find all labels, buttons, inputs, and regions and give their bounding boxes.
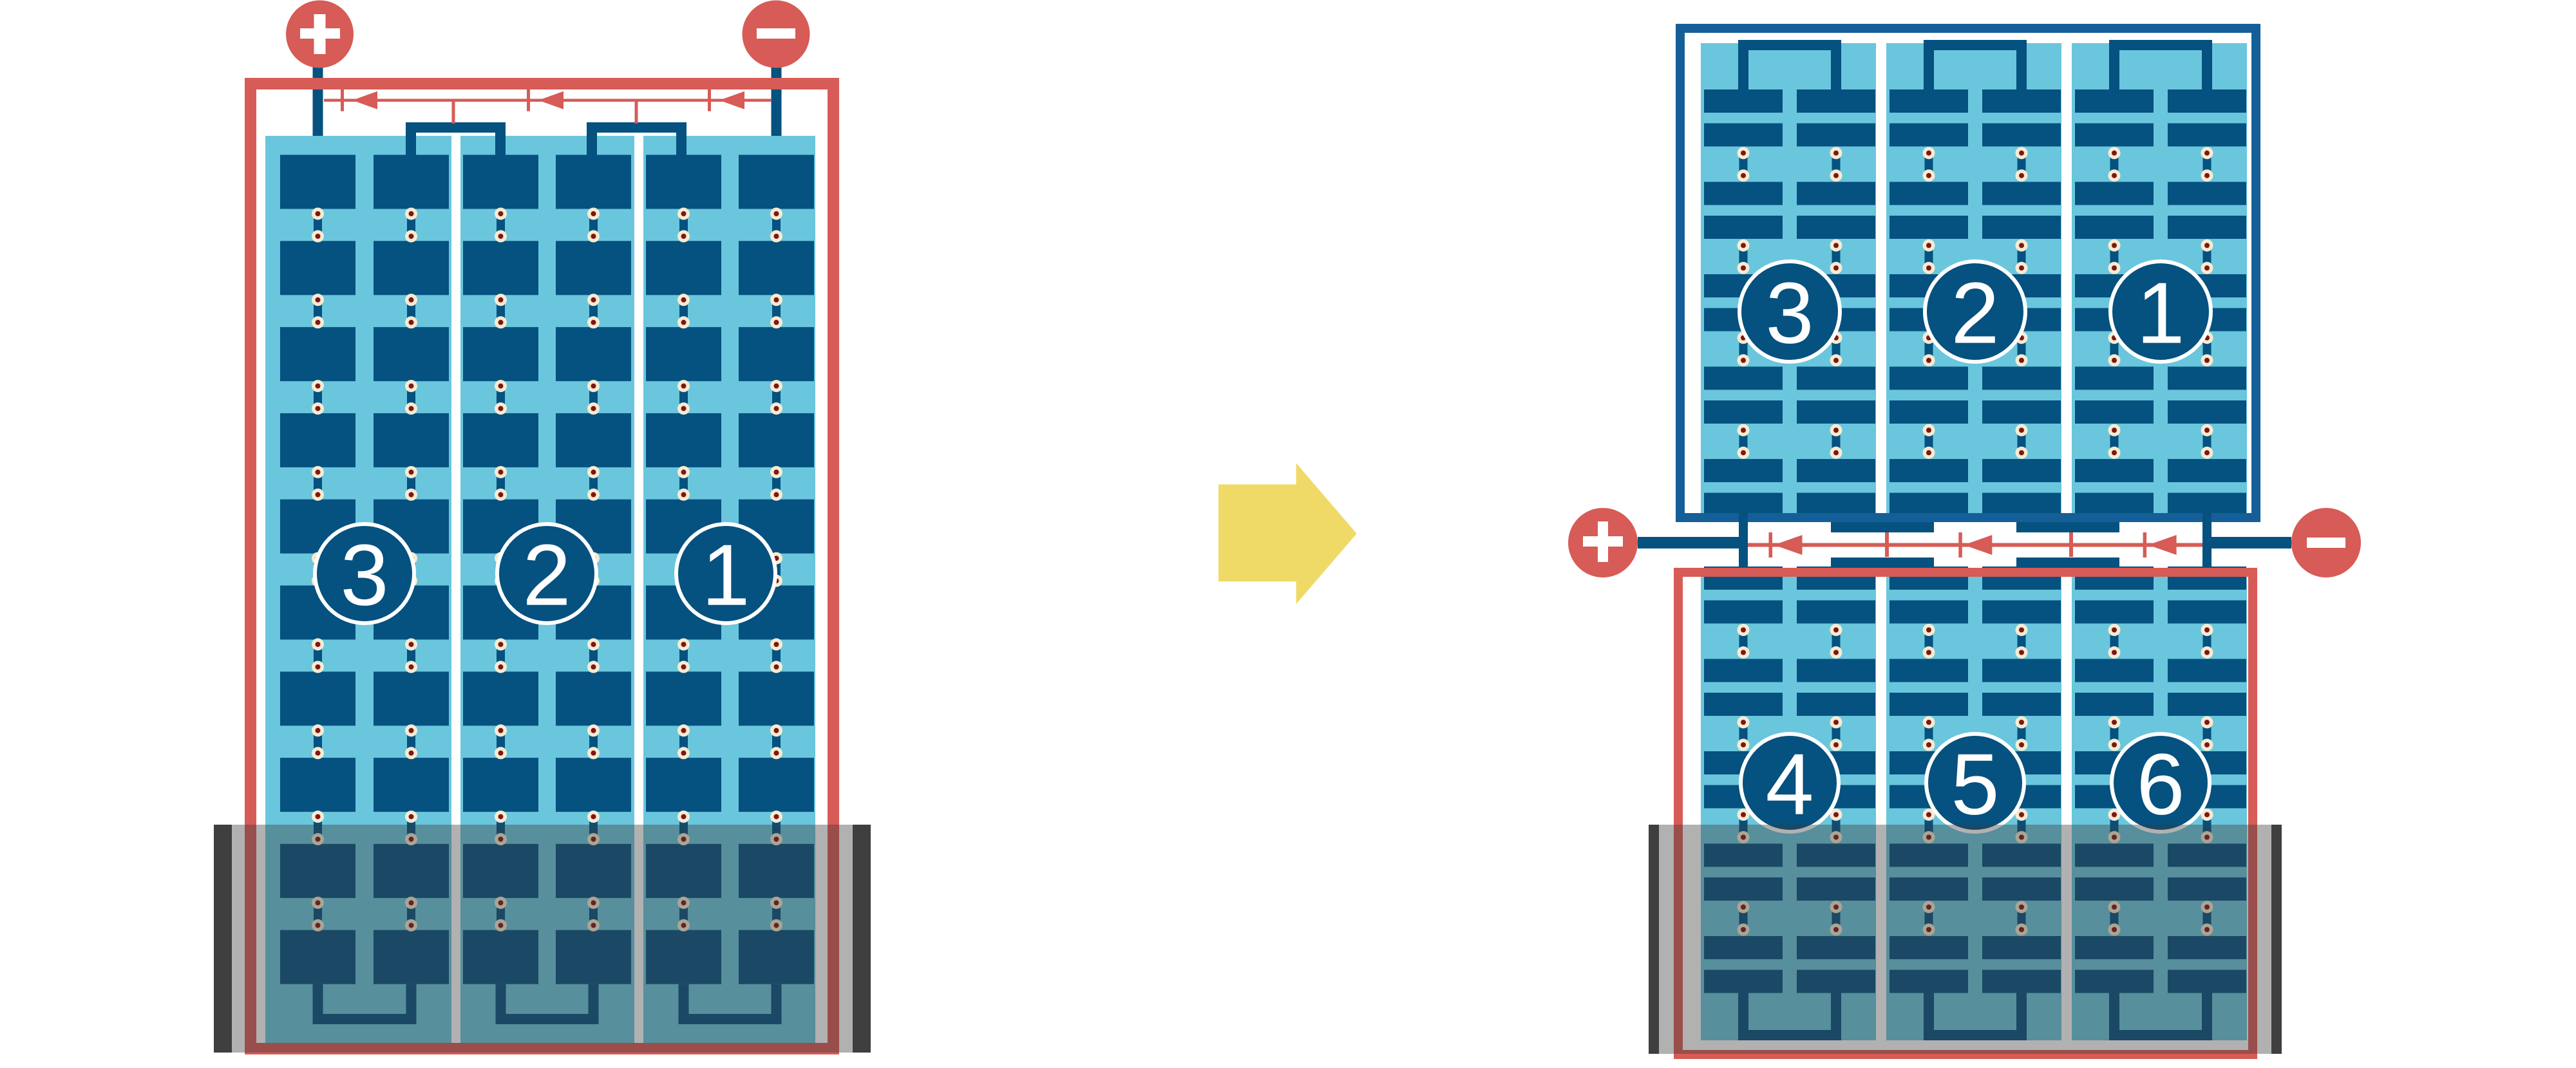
svg-text:2: 2 [1951,265,1999,362]
svg-text:6: 6 [2136,736,2184,833]
svg-text:1: 1 [701,527,750,624]
svg-text:5: 5 [1951,736,1999,833]
svg-text:3: 3 [340,527,388,624]
svg-text:4: 4 [1765,736,1814,833]
svg-text:1: 1 [2136,265,2184,362]
svg-text:2: 2 [522,527,571,624]
svg-text:3: 3 [1765,265,1814,362]
